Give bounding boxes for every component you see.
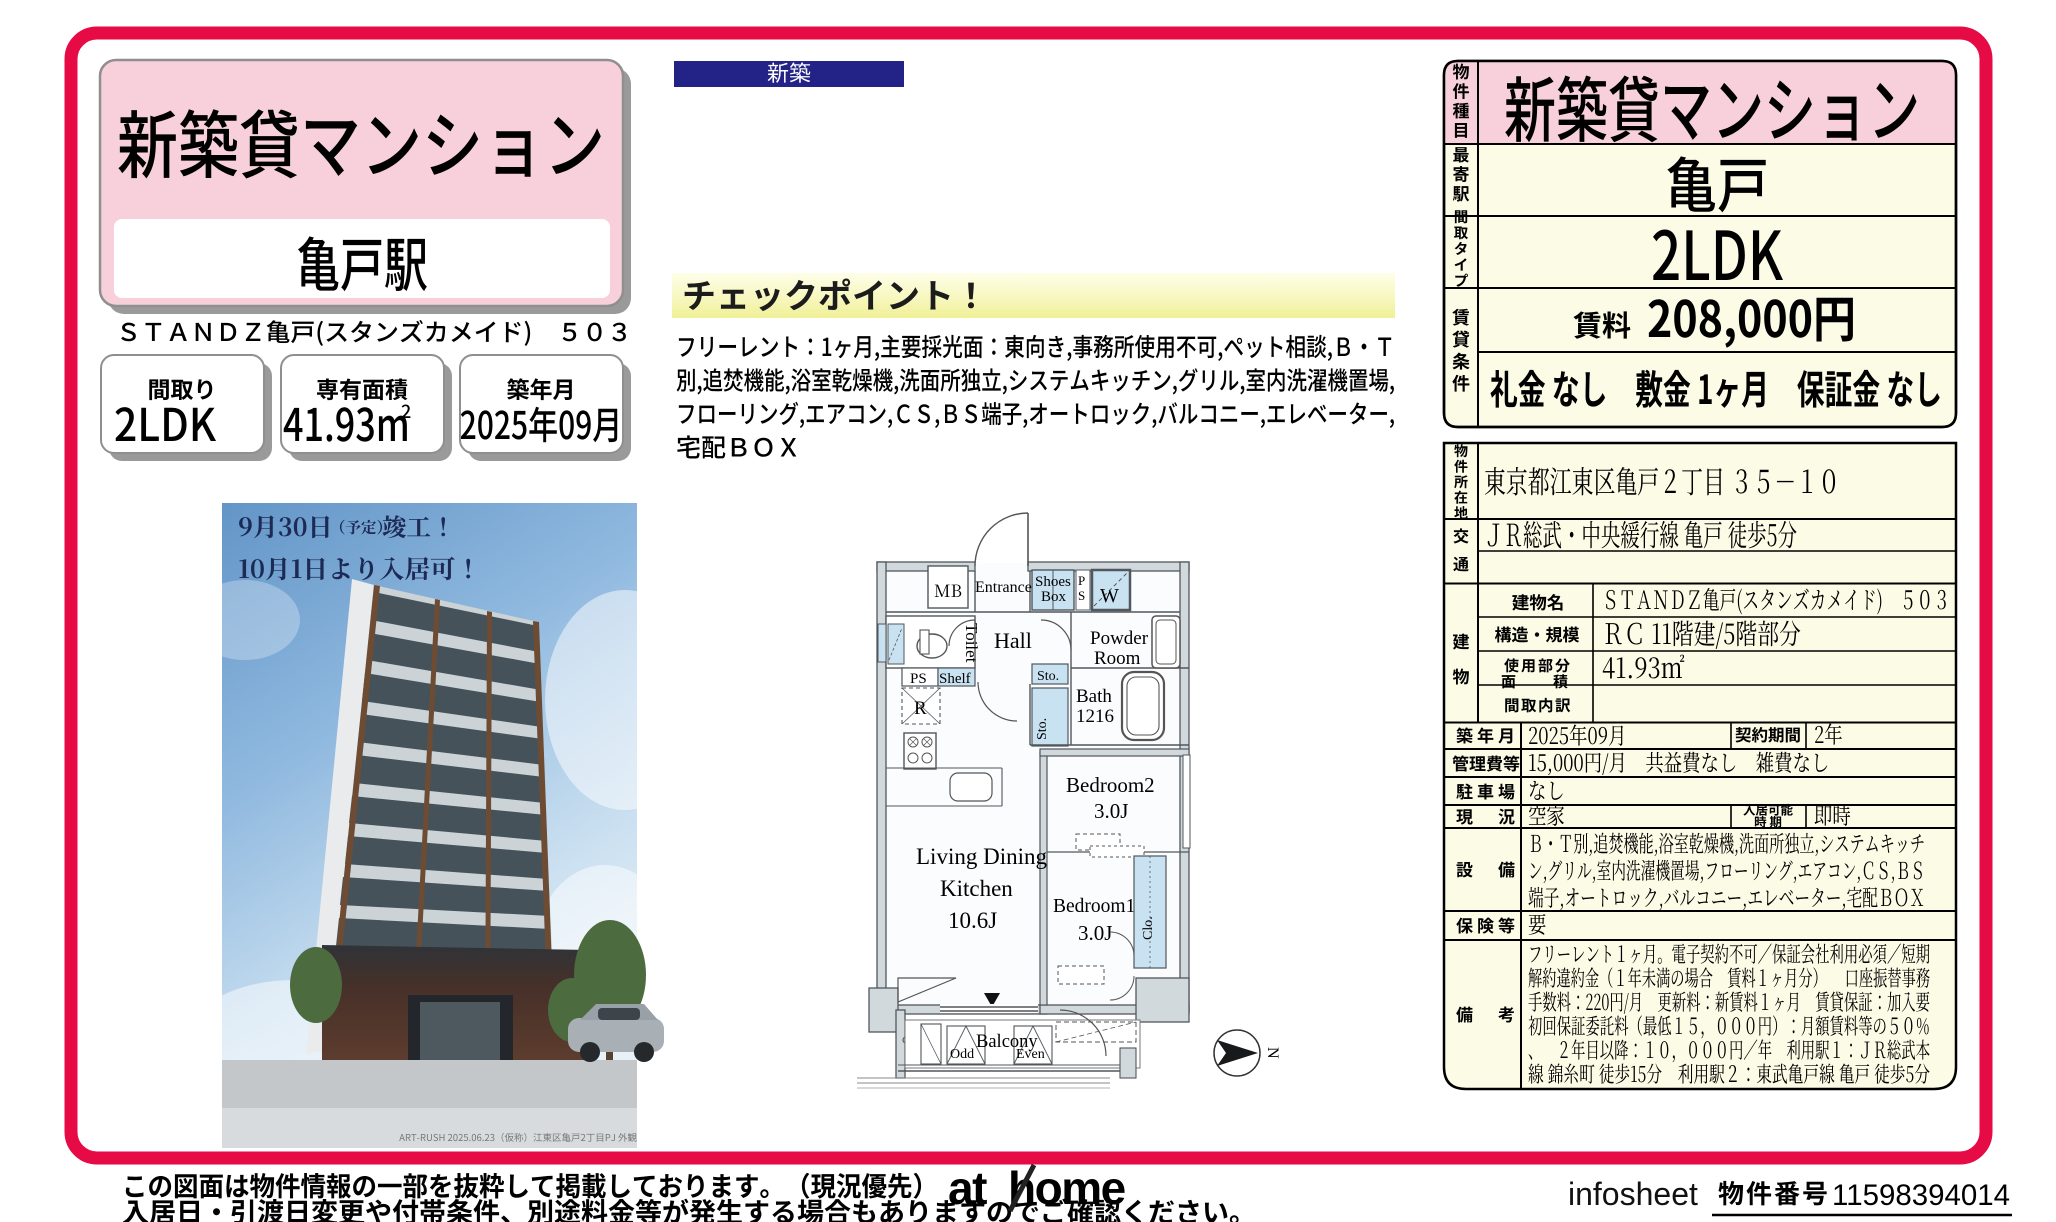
svg-text:Room: Room [1094, 648, 1141, 669]
svg-text:3.0J: 3.0J [1094, 799, 1128, 823]
svg-text:Kitchen: Kitchen [940, 876, 1013, 901]
svg-text:W: W [1100, 585, 1119, 607]
svg-text:R: R [914, 698, 927, 719]
svg-text:1216: 1216 [1076, 706, 1114, 727]
svg-text:Shoes: Shoes [1035, 574, 1071, 590]
svg-text:Box: Box [1041, 589, 1067, 605]
svg-text:Balcony: Balcony [976, 1032, 1038, 1052]
svg-text:at: at [948, 1162, 987, 1214]
svg-text:Bedroom1: Bedroom1 [1053, 896, 1135, 917]
svg-text:S: S [1078, 588, 1085, 603]
svg-text:Shelf: Shelf [939, 671, 971, 687]
svg-text:Sto.: Sto. [1037, 669, 1059, 684]
svg-text:Bath: Bath [1076, 686, 1112, 707]
svg-text:N: N [1264, 1047, 1281, 1059]
svg-text:infosheet: infosheet [1568, 1176, 1698, 1212]
svg-text:Clo.: Clo. [1141, 916, 1156, 940]
svg-text:PS: PS [910, 671, 927, 687]
svg-text:Living Dining: Living Dining [916, 844, 1047, 869]
svg-text:Odd: Odd [950, 1047, 974, 1062]
svg-text:10.6J: 10.6J [948, 908, 997, 933]
svg-text:Entrance: Entrance [975, 579, 1032, 596]
svg-text:Hall: Hall [994, 628, 1032, 653]
svg-text:P: P [1078, 573, 1085, 588]
svg-text:11598394014: 11598394014 [1832, 1179, 2010, 1212]
svg-text:Toilet: Toilet [962, 623, 981, 663]
svg-text:Powder: Powder [1090, 628, 1149, 649]
svg-text:home: home [1008, 1162, 1126, 1214]
svg-text:Bedroom2: Bedroom2 [1066, 773, 1155, 797]
svg-text:3.0J: 3.0J [1078, 921, 1112, 945]
svg-text:Sto.: Sto. [1035, 718, 1050, 740]
